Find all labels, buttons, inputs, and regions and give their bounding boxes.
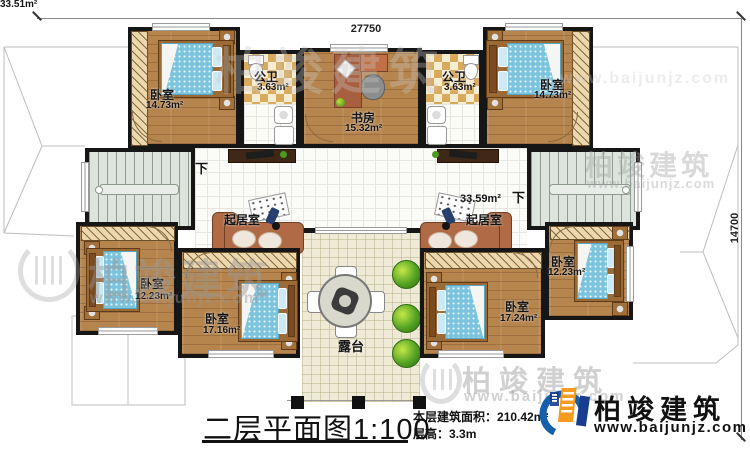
stairs-left	[85, 148, 195, 230]
window	[505, 23, 563, 31]
room-label: 卧室	[205, 313, 229, 325]
room-area: 14.73m²	[146, 101, 183, 111]
bed	[426, 282, 488, 342]
room-label: 起居室	[466, 214, 502, 226]
watermark-logo-icon	[18, 240, 80, 302]
shrub-icon	[392, 339, 421, 368]
wardrobe	[572, 31, 590, 146]
dimension-line-right	[741, 18, 742, 440]
sink	[274, 106, 293, 124]
floor-height-label: 层高：	[413, 427, 449, 441]
person-head	[272, 222, 280, 230]
nightstand	[612, 226, 628, 240]
room-area: 3.63m²	[444, 83, 476, 93]
window	[98, 327, 158, 335]
watermark-logo-icon	[420, 356, 462, 404]
floor-plan-canvas: 27750 14700 卧室 14.73m²	[0, 0, 750, 451]
stair-rail	[99, 184, 179, 195]
stair-newel	[95, 186, 103, 194]
window	[208, 350, 274, 358]
watermark-url: www.baijunjz.com	[587, 176, 715, 191]
watermark-url: www.baijunjz.com	[560, 70, 730, 88]
room-area: 12.23m²	[548, 268, 585, 278]
dining-table-center	[339, 295, 351, 307]
floor-height-value: 3.3m	[449, 427, 476, 441]
stairs-down-label: 下	[512, 191, 525, 204]
stairs-down-label: 下	[195, 162, 208, 175]
window	[81, 162, 89, 212]
nightstand	[487, 96, 503, 110]
window	[626, 246, 634, 302]
dimension-right-value: 14700	[729, 203, 741, 253]
plant-icon	[432, 151, 439, 158]
room-area: 17.16m²	[203, 326, 240, 336]
room-area: 15.32m²	[345, 124, 382, 134]
plant-icon	[280, 151, 287, 158]
watermark-url: www.baijunjz.com	[90, 290, 260, 308]
room-area: 14.73m²	[534, 91, 571, 101]
dimension-line-top	[37, 18, 742, 19]
terrace-door-window	[315, 227, 407, 234]
person-head	[442, 222, 450, 230]
window	[152, 23, 210, 31]
shrub-icon	[392, 260, 421, 289]
sofa-cushion	[454, 230, 478, 248]
washer	[427, 126, 447, 145]
room-label: 起居室	[224, 214, 260, 226]
room-area: 17.24m²	[500, 314, 537, 324]
washer	[274, 126, 294, 145]
nightstand	[612, 302, 628, 316]
floor-area-label: 本层建筑面积：	[413, 410, 497, 424]
floor-area-info: 本层建筑面积：210.42m²	[413, 408, 548, 425]
room-label: 卧室	[505, 301, 529, 313]
shrub-icon	[392, 304, 421, 333]
watermark-text: 柏竣建筑	[215, 32, 447, 104]
living-area: 33.59m²	[460, 194, 501, 205]
brand-url: www.baijunjz.com	[594, 419, 747, 436]
living-area: 33.51m²	[0, 0, 37, 10]
title-underline	[202, 440, 408, 443]
sink	[427, 106, 446, 124]
room-label: 露台	[338, 340, 364, 353]
floor-height-info: 层高：3.3m	[413, 425, 476, 442]
brand-logo-icon	[536, 384, 592, 440]
